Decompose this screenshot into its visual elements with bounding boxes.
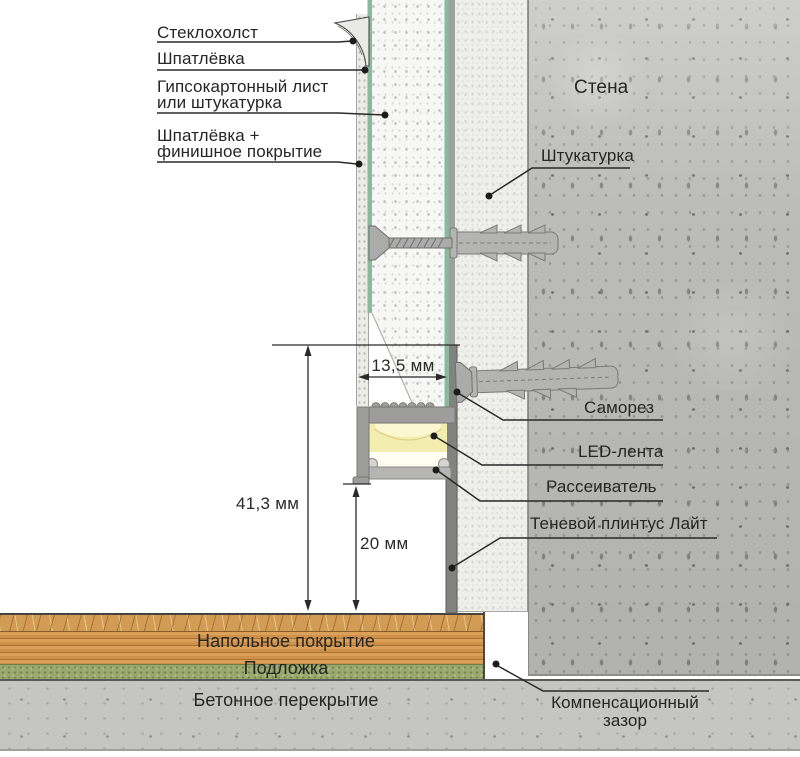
- label-shadow-plinth: Теневой плинтус Лайт: [530, 516, 708, 532]
- label-floor-covering: Напольное покрытие: [193, 632, 379, 650]
- dim-total-height: 41,3 мм: [236, 494, 299, 514]
- label-glass-fleece: Стеклохолст: [157, 25, 258, 41]
- dim-channel-width: 13,5 мм: [362, 356, 444, 376]
- shadow-plinth-section-diagram: Стеклохолст Шпатлёвка Гипсокартонный лис…: [0, 0, 800, 757]
- diffuser-clip-left: [367, 459, 378, 470]
- layer-concrete-wall: [528, 0, 800, 676]
- profile-left-foot: [353, 477, 369, 484]
- dim-bottom-clearance: 20 мм: [360, 534, 409, 554]
- layer-finish-coat-strip: [356, 14, 369, 406]
- label-underlay: Подложка: [193, 659, 379, 677]
- label-screw: Саморез: [584, 400, 654, 416]
- diffuser-bar: [365, 467, 451, 479]
- led-glow-arc: [374, 429, 442, 440]
- layer-plaster: [455, 0, 528, 612]
- label-plaster: Штукатурка: [541, 148, 634, 164]
- label-putty: Шпатлёвка: [157, 51, 245, 67]
- led-glow-hotspot: [375, 413, 441, 437]
- label-diffuser: Рассеиватель: [546, 479, 657, 495]
- profile-left-wall: [357, 407, 369, 484]
- label-concrete-slab: Бетонное перекрытие: [193, 691, 379, 709]
- label-led-strip: LED-лента: [578, 444, 663, 460]
- label-drywall: Гипсокартонный лист или штукатурка: [157, 79, 328, 111]
- diffuser-clip-right: [439, 459, 450, 470]
- label-wall: Стена: [574, 80, 628, 96]
- label-finish-coat: Шпатлёвка + финишное покрытие: [157, 128, 322, 160]
- label-compensation-gap: Компенсационный зазор: [539, 694, 711, 730]
- diffuser-lens: [369, 452, 447, 467]
- led-glow: [369, 423, 447, 452]
- compensation-gap-area: [483, 612, 528, 679]
- layer-floor-covering-top: [0, 613, 483, 632]
